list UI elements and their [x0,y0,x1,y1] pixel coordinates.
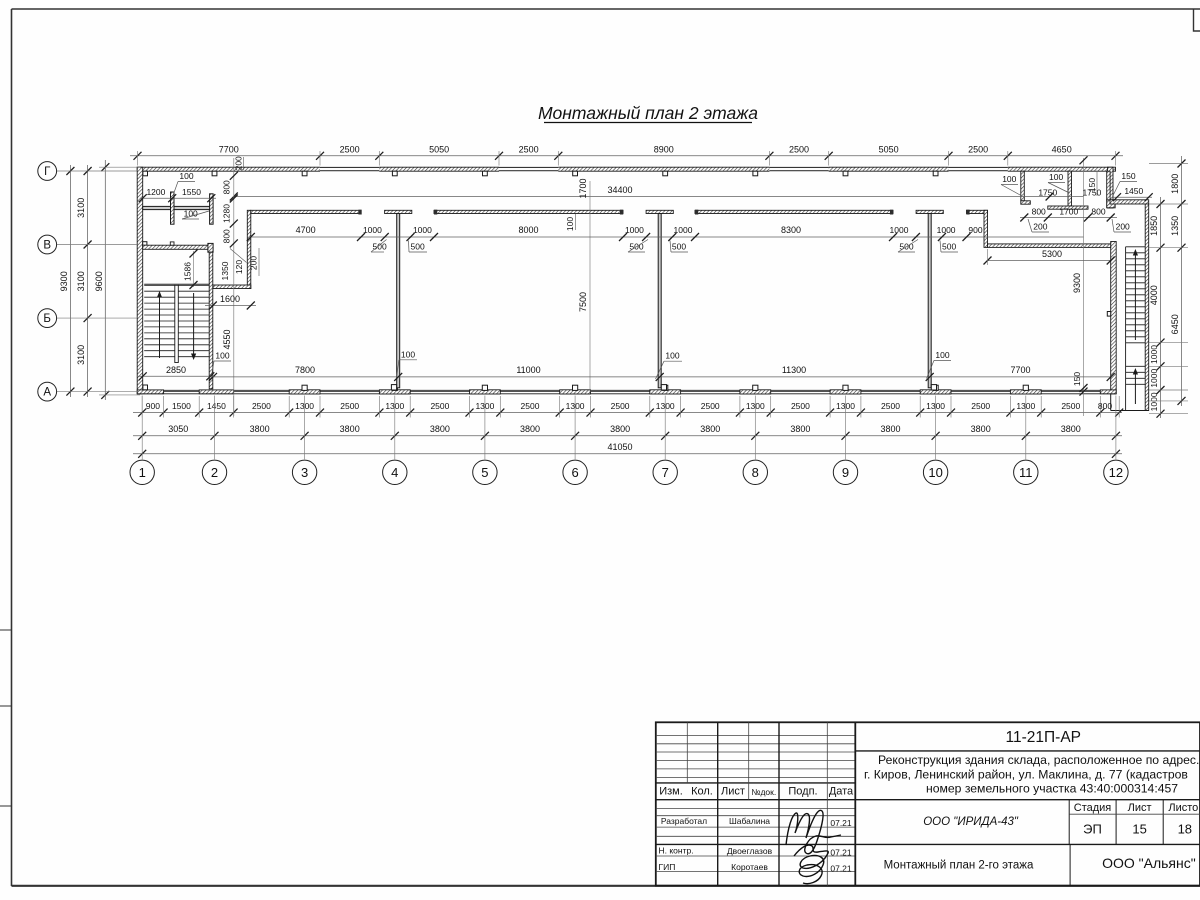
svg-text:500: 500 [942,242,956,252]
svg-text:150: 150 [1072,372,1082,386]
svg-text:1350: 1350 [220,261,230,280]
svg-text:07.21: 07.21 [830,818,852,828]
svg-text:7500: 7500 [578,292,588,312]
svg-text:150: 150 [1087,178,1097,192]
svg-text:2500: 2500 [881,401,900,411]
svg-text:3050: 3050 [168,424,188,434]
svg-text:3100: 3100 [76,198,86,218]
svg-text:3800: 3800 [1061,424,1081,434]
svg-text:3800: 3800 [340,424,360,434]
svg-text:1700: 1700 [1059,206,1078,216]
svg-text:800: 800 [1091,206,1105,216]
svg-text:Лист: Лист [1128,802,1152,814]
svg-text:2500: 2500 [519,144,539,154]
svg-text:800: 800 [221,229,231,243]
svg-text:11300: 11300 [782,365,806,375]
svg-text:7800: 7800 [295,365,315,375]
svg-text:100: 100 [935,350,949,360]
svg-text:Дата: Дата [829,786,854,798]
svg-text:100: 100 [184,209,198,219]
svg-text:900: 900 [968,225,982,235]
svg-text:100: 100 [215,351,229,361]
svg-text:3800: 3800 [700,424,720,434]
svg-text:1000: 1000 [363,225,382,235]
svg-text:150: 150 [1121,171,1135,181]
svg-text:4000: 4000 [1149,285,1159,305]
svg-text:Коротаев: Коротаев [731,862,768,872]
svg-text:А: А [43,387,51,399]
svg-text:ГИП: ГИП [659,862,676,872]
svg-text:Двоеглазов: Двоеглазов [727,846,773,856]
svg-text:2500: 2500 [430,401,449,411]
svg-text:4700: 4700 [296,225,316,235]
svg-text:9300: 9300 [1072,273,1082,293]
svg-text:Реконструкция здания склада, р: Реконструкция здания склада, расположенн… [878,753,1200,767]
svg-text:Лист: Лист [721,786,745,798]
svg-text:Стадия: Стадия [1074,802,1112,814]
svg-text:3800: 3800 [250,424,270,434]
svg-text:1850: 1850 [1149,216,1159,236]
svg-text:ООО "ИРИДА-43": ООО "ИРИДА-43" [923,816,1019,828]
svg-text:1000: 1000 [625,225,644,235]
svg-text:номер земельного участка 43:40: номер земельного участка 43:40:000314:45… [926,782,1178,796]
svg-text:5300: 5300 [1042,249,1062,259]
svg-text:2500: 2500 [340,144,360,154]
svg-text:500: 500 [672,242,686,252]
svg-text:4550: 4550 [222,329,232,349]
svg-text:1: 1 [139,465,146,480]
svg-text:1450: 1450 [1124,186,1143,196]
svg-text:Монтажный план 2-го этажа: Монтажный план 2-го этажа [884,860,1034,872]
svg-text:1586: 1586 [183,262,193,281]
svg-text:1000: 1000 [937,225,956,235]
svg-text:3100: 3100 [76,271,86,291]
svg-text:2500: 2500 [971,401,990,411]
svg-text:8900: 8900 [654,144,674,154]
svg-text:800: 800 [1098,401,1112,411]
svg-text:1700: 1700 [578,178,588,198]
svg-text:34400: 34400 [607,185,632,195]
svg-text:ЭП: ЭП [1083,822,1102,837]
svg-text:5: 5 [481,465,488,480]
svg-text:В: В [43,240,51,252]
svg-text:1550: 1550 [182,187,201,197]
svg-text:07.21: 07.21 [830,848,852,858]
svg-text:800: 800 [1032,206,1046,216]
svg-text:Разработал: Разработал [661,816,707,826]
svg-text:100: 100 [401,349,415,359]
svg-text:12: 12 [1109,465,1123,480]
svg-text:Изм.: Изм. [659,786,683,798]
svg-text:100: 100 [665,351,679,361]
svg-text:1000: 1000 [1149,345,1159,364]
svg-text:100: 100 [1002,174,1016,184]
svg-text:800: 800 [221,180,231,194]
svg-text:Г: Г [44,166,51,178]
svg-text:1000: 1000 [413,225,432,235]
svg-text:1800: 1800 [1170,174,1180,194]
svg-text:1000: 1000 [890,225,909,235]
svg-text:07.21: 07.21 [830,864,852,874]
svg-text:7700: 7700 [219,144,239,154]
svg-text:9: 9 [842,465,849,480]
svg-text:2500: 2500 [1061,401,1080,411]
svg-text:2500: 2500 [791,401,810,411]
svg-text:2850: 2850 [166,365,186,375]
svg-text:200: 200 [1033,222,1047,232]
svg-text:2500: 2500 [789,144,809,154]
svg-text:2500: 2500 [611,401,630,411]
svg-text:500: 500 [411,242,425,252]
svg-text:100: 100 [565,217,575,231]
svg-text:41050: 41050 [607,442,632,452]
svg-text:1600: 1600 [220,294,240,304]
svg-text:Н. контр.: Н. контр. [659,846,694,856]
svg-text:2500: 2500 [968,144,988,154]
svg-text:500: 500 [373,242,387,252]
svg-text:3800: 3800 [430,424,450,434]
svg-text:200: 200 [249,256,259,270]
svg-text:3800: 3800 [610,424,630,434]
svg-text:1200: 1200 [146,187,165,197]
svg-text:2: 2 [211,465,218,480]
svg-text:Монтажный план 2 этажа: Монтажный план 2 этажа [538,103,758,123]
svg-text:11: 11 [1019,465,1033,480]
svg-text:1350: 1350 [1170,216,1180,236]
svg-text:Б: Б [43,313,51,325]
svg-text:1450: 1450 [207,401,226,411]
svg-text:6450: 6450 [1170,314,1180,334]
svg-text:4650: 4650 [1052,144,1072,154]
svg-text:8: 8 [752,465,759,480]
svg-text:1000: 1000 [1149,368,1159,387]
svg-text:8000: 8000 [518,225,538,235]
svg-text:Кол.: Кол. [691,786,713,798]
svg-text:9300: 9300 [59,271,69,291]
svg-text:1280: 1280 [221,204,231,223]
svg-text:Шабалина: Шабалина [729,816,770,826]
svg-text:1000: 1000 [674,225,693,235]
svg-text:1000: 1000 [1149,392,1159,411]
svg-text:3800: 3800 [880,424,900,434]
svg-text:200: 200 [1116,222,1130,232]
svg-text:5050: 5050 [879,144,899,154]
svg-text:2500: 2500 [521,401,540,411]
svg-text:ООО "Альянс": ООО "Альянс" [1102,855,1196,871]
svg-text:3800: 3800 [790,424,810,434]
svg-text:Листо: Листо [1168,802,1198,814]
svg-text:15: 15 [1132,822,1146,837]
svg-text:3800: 3800 [520,424,540,434]
svg-text:3800: 3800 [971,424,991,434]
svg-text:3100: 3100 [76,345,86,365]
svg-text:6: 6 [571,465,578,480]
svg-text:100: 100 [1049,172,1063,182]
svg-text:11000: 11000 [516,365,540,375]
svg-text:1750: 1750 [1038,187,1057,197]
svg-text:120: 120 [234,260,244,274]
svg-text:4: 4 [391,465,398,480]
svg-text:18: 18 [1178,822,1192,837]
svg-text:2500: 2500 [252,401,271,411]
svg-text:9600: 9600 [94,271,104,291]
svg-text:11-21П-АР: 11-21П-АР [1006,729,1081,746]
svg-text:8300: 8300 [781,225,801,235]
svg-text:1500: 1500 [172,401,191,411]
svg-text:100: 100 [179,171,193,181]
svg-text:10: 10 [928,465,942,480]
svg-text:г. Киров, Ленинский район, ул.: г. Киров, Ленинский район, ул. Маклина, … [864,767,1188,781]
svg-text:7: 7 [662,465,669,480]
svg-text:2500: 2500 [340,401,359,411]
svg-text:900: 900 [146,401,160,411]
svg-text:5050: 5050 [429,144,449,154]
svg-text:№док.: №док. [751,787,776,797]
svg-text:3: 3 [301,465,308,480]
svg-text:7700: 7700 [1010,365,1030,375]
svg-text:2500: 2500 [701,401,720,411]
svg-text:200: 200 [233,156,243,170]
svg-text:Подп.: Подп. [788,786,817,798]
